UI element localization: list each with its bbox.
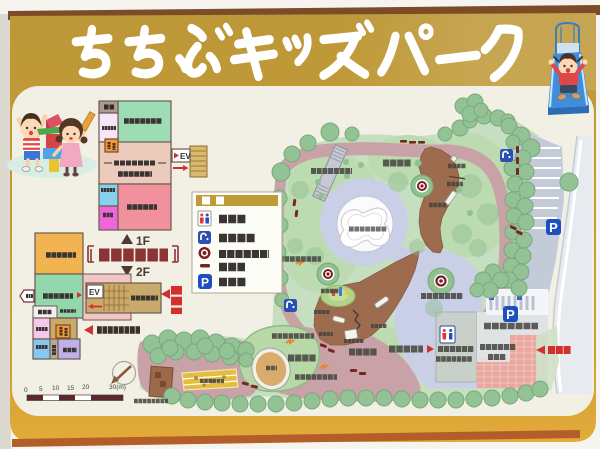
svg-text:P: P (549, 220, 558, 235)
svg-text:0: 0 (24, 387, 28, 394)
svg-text:5: 5 (39, 386, 43, 393)
svg-text:15: 15 (67, 385, 75, 392)
svg-text:30(m): 30(m) (109, 384, 126, 391)
svg-text:20: 20 (82, 384, 90, 391)
svg-text:1F: 1F (136, 234, 150, 248)
svg-text:EV: EV (180, 152, 191, 161)
svg-text:EV: EV (89, 288, 100, 297)
svg-text:10: 10 (52, 385, 60, 392)
svg-text:2F: 2F (136, 265, 150, 279)
svg-text:P: P (201, 276, 209, 290)
svg-text:P: P (506, 307, 515, 322)
